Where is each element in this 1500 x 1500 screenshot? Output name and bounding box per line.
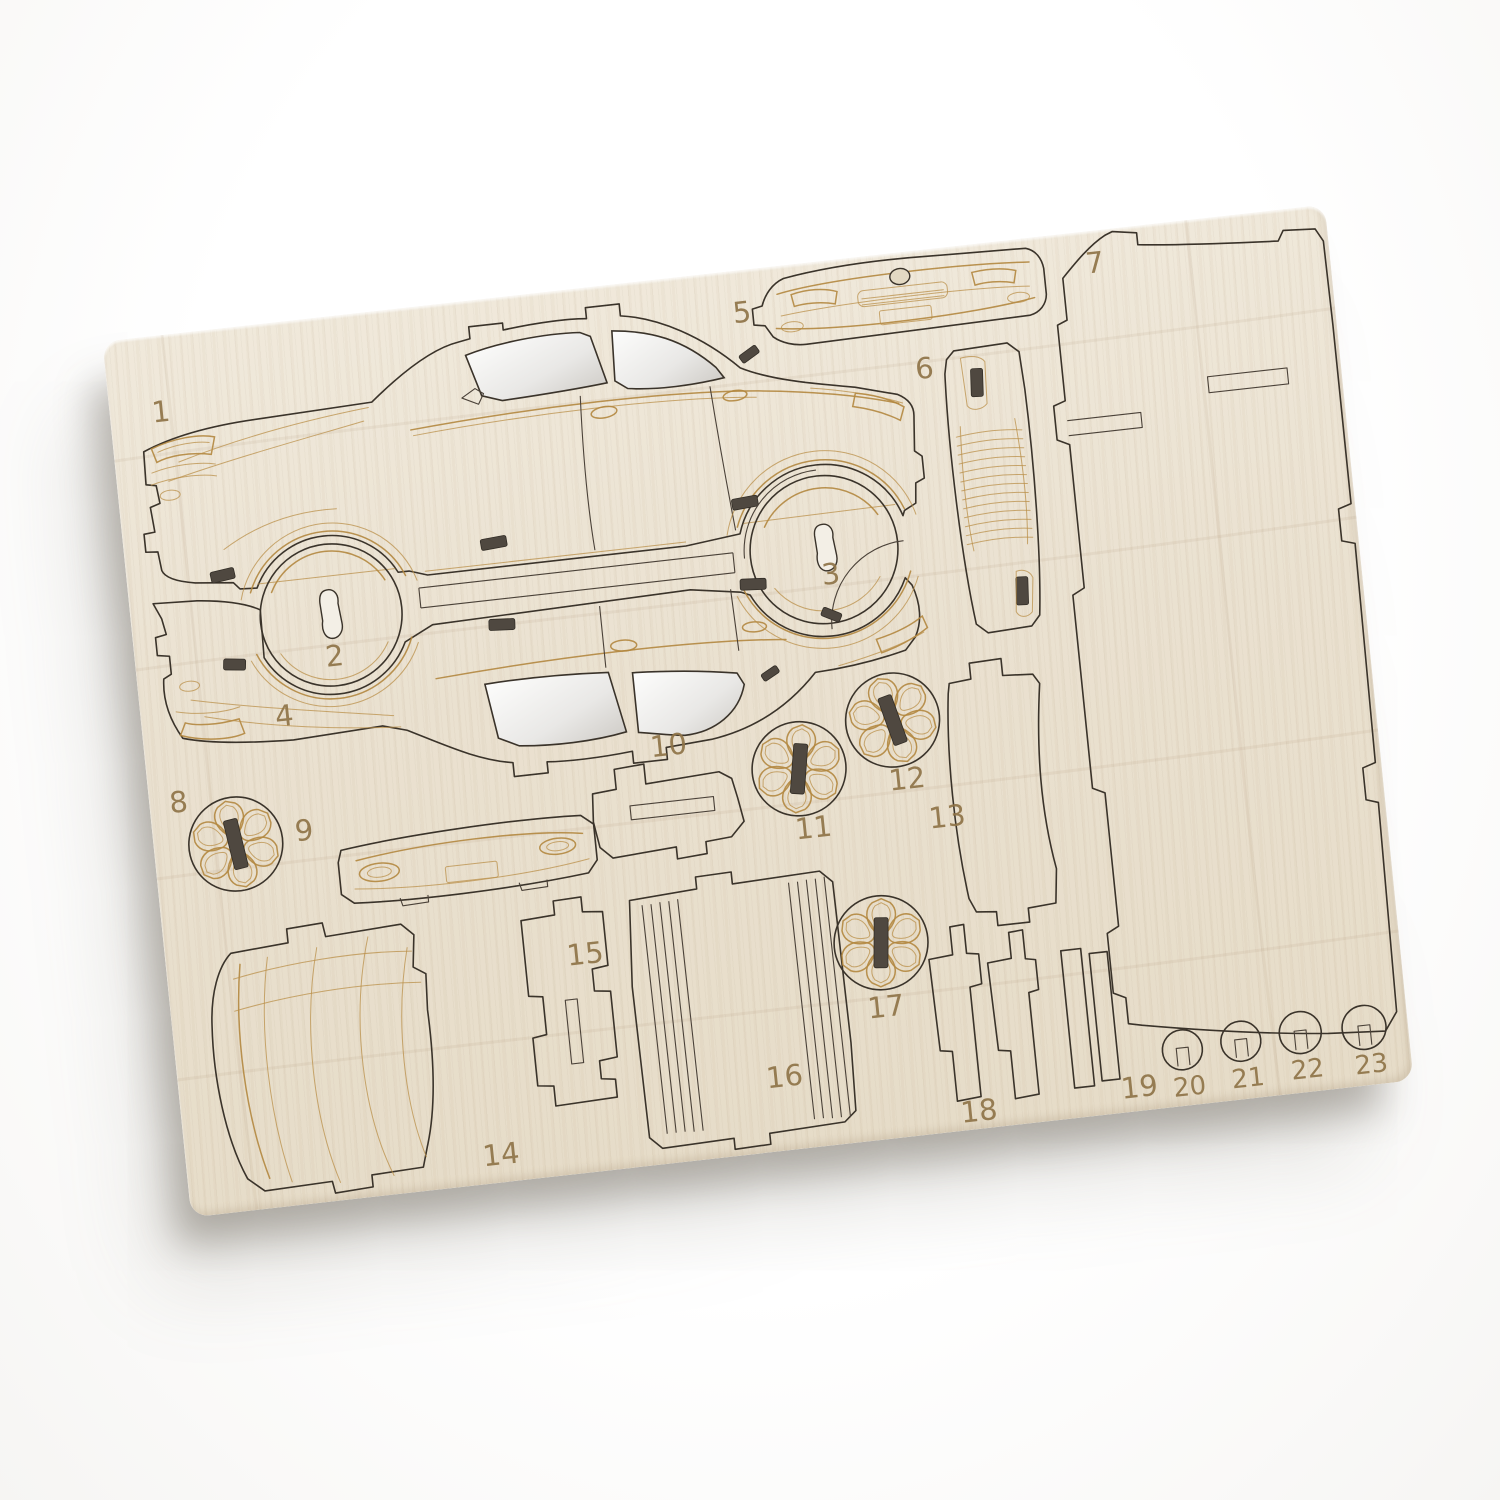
part-15-axle-bracket: 15	[519, 895, 621, 1108]
part-20-headlight-ring: 20	[1160, 1028, 1207, 1105]
part-label-21: 21	[1230, 1062, 1266, 1096]
part-label-6: 6	[914, 350, 936, 386]
part-2-wheel-bay-disc: 2	[253, 536, 408, 693]
part-label-13: 13	[927, 798, 967, 836]
part-label-11: 11	[793, 809, 833, 847]
part-label-12: 12	[887, 760, 927, 798]
part-label-9: 9	[293, 812, 315, 848]
part-1-car-side-panel: 1	[126, 272, 929, 610]
part-label-7: 7	[1084, 245, 1106, 281]
part-label-23: 23	[1353, 1048, 1389, 1082]
part-5-front-bumper-panel: 5	[729, 243, 1049, 353]
part-8-wheel-disc: 8	[168, 773, 294, 903]
part-label-4: 4	[273, 698, 295, 734]
part-label-20: 20	[1172, 1070, 1208, 1104]
part-13-fender-brace: 13	[913, 655, 1063, 932]
part-label-15: 15	[565, 935, 605, 973]
part-label-1: 1	[150, 394, 172, 430]
part-label-10: 10	[648, 726, 688, 764]
sill-strips	[419, 553, 735, 608]
part-label-22: 22	[1290, 1053, 1326, 1087]
part-9-rear-bumper-panel: 9	[293, 781, 600, 917]
part-18-support-struts: 18	[926, 917, 1052, 1132]
part-22-headlight-ring: 22	[1277, 1009, 1326, 1087]
part-label-18: 18	[959, 1092, 999, 1130]
part-7-chassis-base-panel: 7	[1037, 208, 1405, 1061]
window-cutout	[485, 668, 627, 752]
part-label-17: 17	[866, 988, 906, 1026]
part-11-wheel-disc: 11	[739, 709, 861, 852]
part-12-wheel-disc: 12	[830, 657, 957, 803]
plywood-sheet: 1 2 3	[102, 205, 1413, 1218]
part-label-19: 19	[1119, 1068, 1159, 1106]
window-cutout	[610, 319, 725, 393]
part-label-8: 8	[168, 784, 190, 820]
part-17-wheel-disc: 17	[824, 886, 940, 1029]
part-6-grille-panel: 6	[914, 340, 1050, 638]
wood-grain	[102, 205, 1413, 1218]
part-label-2: 2	[324, 638, 346, 674]
laser-cut-layout: 1 2 3	[102, 205, 1413, 1218]
part-16-kerf-panel: 16	[622, 861, 861, 1159]
window-cutout	[464, 329, 607, 404]
part-23-headlight-ring: 23	[1340, 1003, 1391, 1083]
product-photo: 1 2 3	[0, 0, 1500, 1500]
part-label-14: 14	[481, 1135, 521, 1173]
window-cutout	[632, 660, 748, 740]
part-label-5: 5	[731, 294, 753, 330]
part-label-16: 16	[764, 1057, 804, 1095]
part-10-bracket: 10	[585, 721, 747, 868]
part-label-3: 3	[820, 556, 842, 592]
